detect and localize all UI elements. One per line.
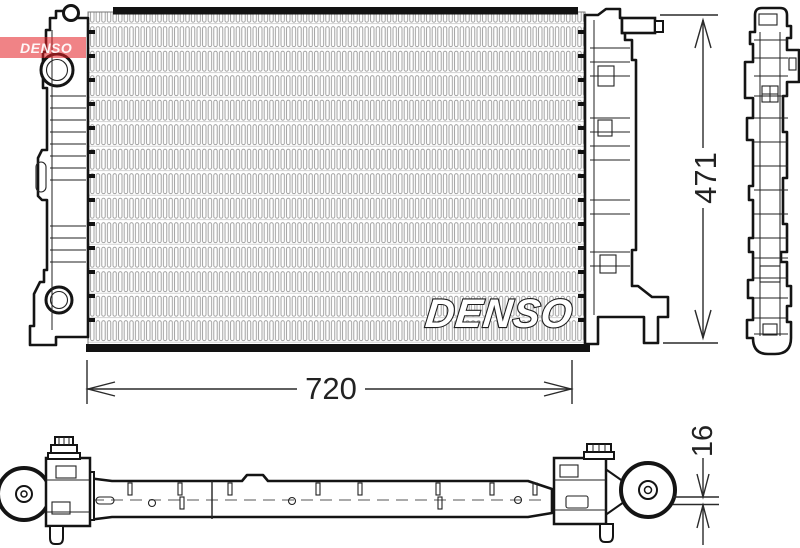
radiator-side-view: [745, 8, 799, 354]
denso-logo-banner: DENSO: [0, 37, 86, 58]
denso-watermark: DENSO: [423, 292, 575, 336]
bottom-right-fitting: [554, 444, 675, 542]
mounting-hook: [64, 6, 79, 21]
height-dimension-label: 471: [688, 152, 723, 204]
right-bottom-tab: [600, 524, 613, 542]
denso-logo-text: DENSO: [20, 40, 72, 56]
bottom-left-fitting: [0, 437, 94, 544]
depth-dimension: 16: [673, 425, 719, 545]
right-cap-stack: [584, 444, 614, 459]
width-dimension-label: 720: [305, 371, 357, 406]
left-cap-stack: [48, 437, 80, 459]
bottom-bar: [88, 475, 552, 520]
drain-port: [46, 287, 72, 313]
filler-port: [41, 54, 73, 86]
outlet-pipe: [622, 18, 663, 33]
right-cap-circle: [621, 463, 675, 517]
radiator-front-view: DENSO: [30, 6, 668, 353]
radiator-bottom-view: [0, 437, 675, 544]
depth-dimension-label: 16: [687, 425, 719, 457]
height-dimension: 471: [660, 15, 723, 343]
right-tank: [578, 9, 668, 344]
left-cap-circle: [0, 468, 50, 520]
catalog-part-image: DENSO 471 720: [0, 0, 800, 548]
width-dimension: 720: [87, 360, 572, 406]
technical-drawing: DENSO 471 720: [0, 0, 800, 548]
core-top-bar: [113, 7, 578, 15]
core-bottom-bar: [86, 344, 590, 352]
left-bottom-tab: [50, 526, 63, 544]
